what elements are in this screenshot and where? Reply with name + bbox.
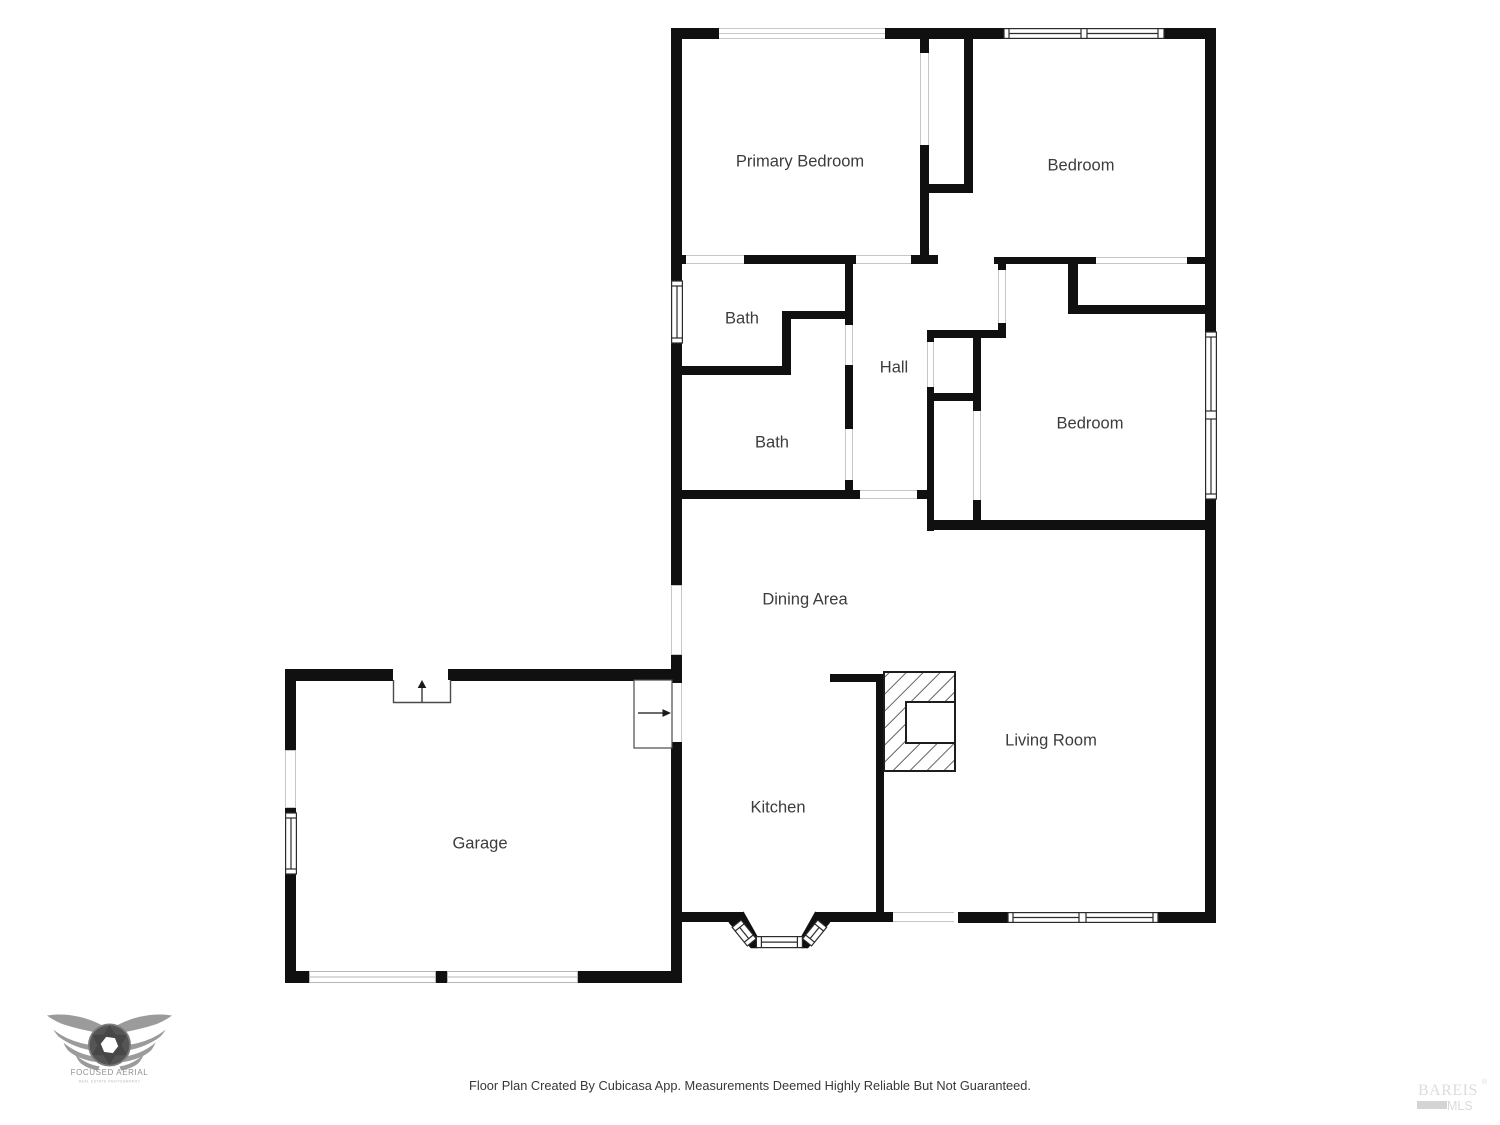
svg-text:BAREIS: BAREIS: [1418, 1082, 1478, 1099]
svg-text:Garage: Garage: [452, 835, 507, 853]
svg-text:Bedroom: Bedroom: [1048, 157, 1115, 175]
svg-text:Primary Bedroom: Primary Bedroom: [736, 153, 864, 171]
svg-text:REAL ESTATE PHOTOGRAPHY: REAL ESTATE PHOTOGRAPHY: [79, 1080, 141, 1084]
svg-text:Floor Plan Created By Cubicasa: Floor Plan Created By Cubicasa App. Meas…: [469, 1078, 1031, 1093]
svg-text:Dining Area: Dining Area: [762, 591, 848, 609]
svg-text:Living Room: Living Room: [1005, 732, 1097, 750]
svg-text:FOCUSED AERIAL: FOCUSED AERIAL: [71, 1068, 149, 1077]
svg-text:®: ®: [1482, 1078, 1488, 1086]
svg-text:Bath: Bath: [755, 434, 789, 452]
svg-text:Bedroom: Bedroom: [1057, 415, 1124, 433]
svg-text:Kitchen: Kitchen: [750, 799, 805, 817]
svg-text:Hall: Hall: [880, 359, 908, 377]
svg-text:MLS: MLS: [1447, 1099, 1473, 1113]
svg-text:Bath: Bath: [725, 310, 759, 328]
